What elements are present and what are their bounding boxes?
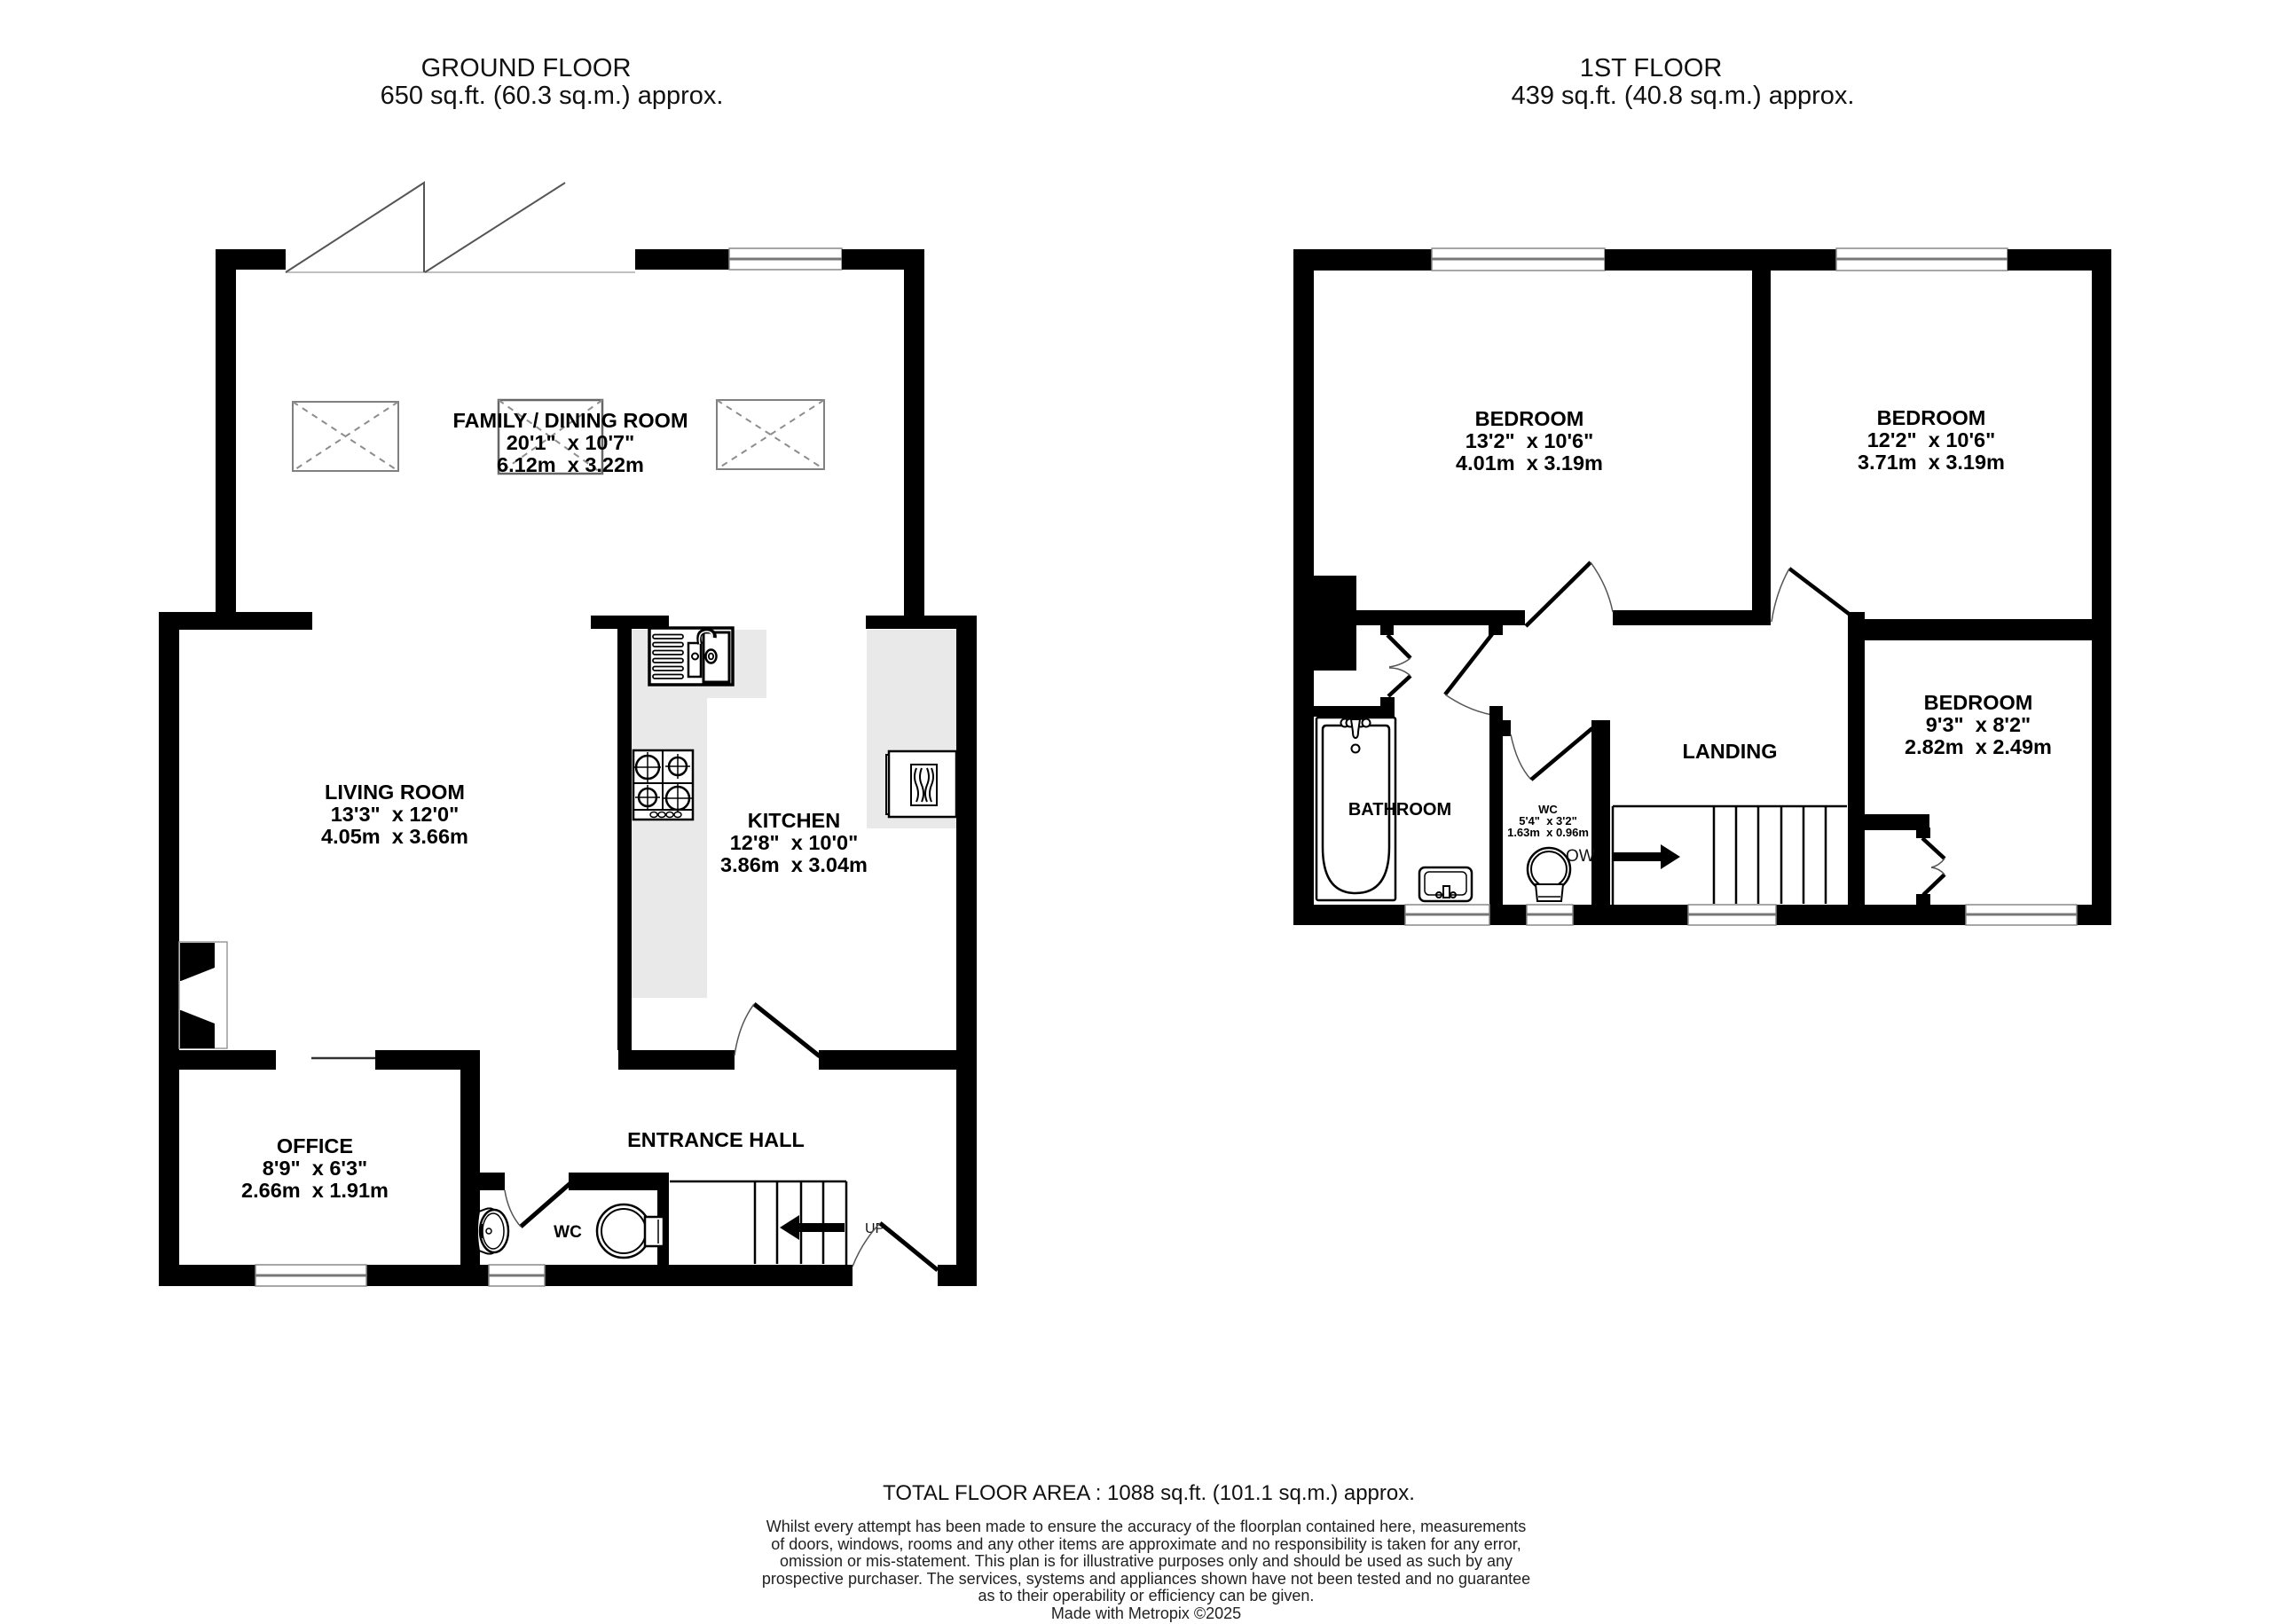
svg-text:3.86m x 3.04m: 3.86m x 3.04m (720, 853, 868, 876)
svg-text:3.71m x 3.19m: 3.71m x 3.19m (1858, 451, 2005, 474)
svg-text:4.05m x 3.66m: 4.05m x 3.66m (321, 825, 468, 848)
svg-text:of doors, windows, rooms and a: of doors, windows, rooms and any other i… (771, 1535, 1521, 1553)
svg-text:omission or mis-statement. Thi: omission or mis-statement. This plan is … (780, 1552, 1513, 1570)
svg-text:2.66m x 1.91m: 2.66m x 1.91m (241, 1179, 389, 1202)
svg-text:BATHROOM: BATHROOM (1348, 800, 1451, 820)
svg-text:1.63m x 0.96m: 1.63m x 0.96m (1507, 826, 1589, 839)
svg-text:Made with Metropix ©2025: Made with Metropix ©2025 (1051, 1604, 1241, 1622)
svg-text:ENTRANCE HALL: ENTRANCE HALL (627, 1128, 805, 1151)
svg-text:KITCHEN: KITCHEN (748, 809, 840, 832)
svg-text:OW: OW (1566, 847, 1595, 866)
svg-text:prospective purchaser. The ser: prospective purchaser. The services, sys… (762, 1570, 1530, 1588)
svg-text:OFFICE: OFFICE (277, 1134, 353, 1157)
svg-text:TOTAL FLOOR AREA : 1088 sq.ft.: TOTAL FLOOR AREA : 1088 sq.ft. (101.1 sq… (883, 1481, 1415, 1505)
svg-text:13'3" x 12'0": 13'3" x 12'0" (331, 803, 460, 826)
svg-text:12'8" x 10'0": 12'8" x 10'0" (730, 831, 859, 854)
svg-text:FAMILY / DINING ROOM: FAMILY / DINING ROOM (452, 409, 688, 432)
svg-text:20'1" x 10'7": 20'1" x 10'7" (507, 431, 635, 454)
svg-text:BEDROOM: BEDROOM (1475, 407, 1584, 430)
svg-text:9'3" x 8'2": 9'3" x 8'2" (1926, 713, 2031, 736)
svg-text:2.82m x 2.49m: 2.82m x 2.49m (1905, 735, 2052, 758)
svg-text:1ST FLOOR: 1ST FLOOR (1580, 54, 1723, 82)
svg-text:650 sq.ft. (60.3 sq.m.) approx: 650 sq.ft. (60.3 sq.m.) approx. (381, 82, 724, 110)
svg-text:8'9" x 6'3": 8'9" x 6'3" (263, 1157, 367, 1180)
svg-text:Whilst every attempt has been: Whilst every attempt has been made to en… (766, 1518, 1526, 1535)
svg-text:12'2" x 10'6": 12'2" x 10'6" (1867, 428, 1996, 451)
svg-text:GROUND FLOOR: GROUND FLOOR (421, 54, 632, 82)
svg-text:LANDING: LANDING (1682, 740, 1777, 763)
svg-text:439 sq.ft. (40.8 sq.m.) approx: 439 sq.ft. (40.8 sq.m.) approx. (1512, 82, 1855, 110)
svg-text:13'2" x 10'6": 13'2" x 10'6" (1466, 429, 1594, 452)
svg-text:BEDROOM: BEDROOM (1877, 406, 1986, 429)
svg-text:as to their operability or eff: as to their operability or efficiency ca… (978, 1587, 1315, 1604)
svg-text:LIVING ROOM: LIVING ROOM (325, 781, 465, 804)
svg-text:6.12m x 3.22m: 6.12m x 3.22m (497, 453, 644, 476)
svg-text:4.01m x 3.19m: 4.01m x 3.19m (1456, 451, 1603, 475)
svg-text:BEDROOM: BEDROOM (1924, 691, 2033, 714)
svg-text:WC: WC (554, 1223, 582, 1242)
